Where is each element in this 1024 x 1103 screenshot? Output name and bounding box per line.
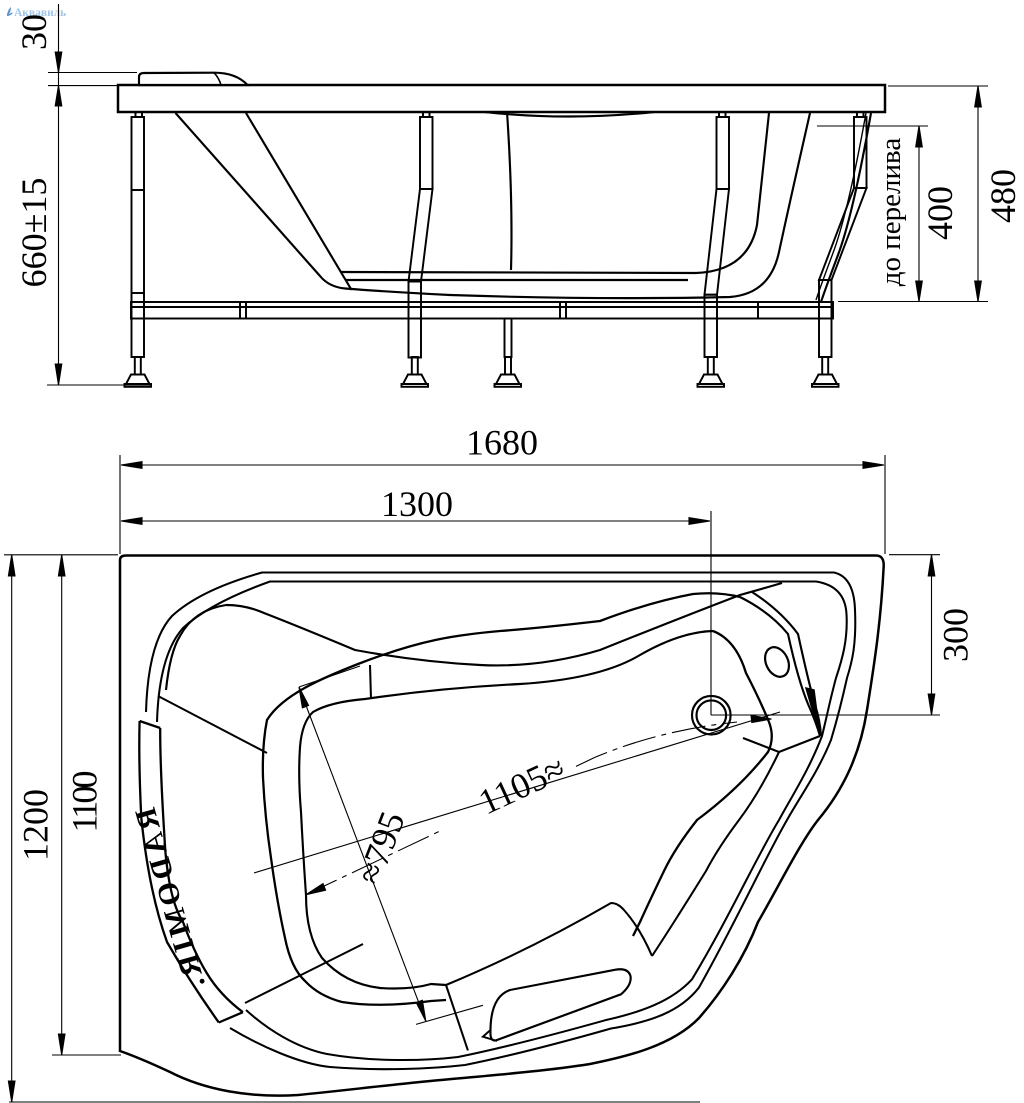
svg-text:1300: 1300 bbox=[381, 484, 453, 524]
svg-text:1200: 1200 bbox=[16, 789, 56, 861]
svg-text:≈795: ≈795 bbox=[349, 806, 413, 889]
svg-text:300: 300 bbox=[936, 608, 976, 662]
svg-text:1680: 1680 bbox=[466, 423, 538, 463]
svg-text:1105≈: 1105≈ bbox=[473, 748, 572, 822]
svg-text:480: 480 bbox=[983, 169, 1023, 223]
svg-text:400: 400 bbox=[920, 186, 960, 240]
svg-text:RADOMIR.: RADOMIR. bbox=[129, 804, 213, 995]
svg-text:660±15: 660±15 bbox=[14, 178, 54, 288]
svg-text:1100: 1100 bbox=[65, 771, 105, 833]
svg-text:до перелива: до перелива bbox=[875, 138, 907, 287]
svg-text:30: 30 bbox=[14, 14, 54, 50]
